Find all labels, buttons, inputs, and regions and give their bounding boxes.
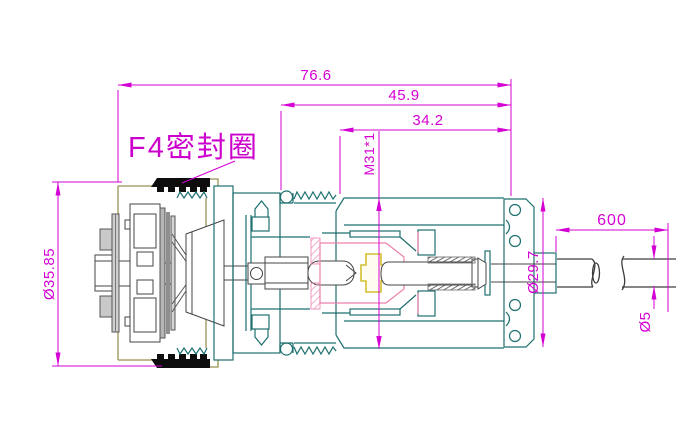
shell-threads-bottom [177,348,207,354]
dim-text-thread-spec: M31*1 [361,133,377,176]
insert-cell-bottom [134,298,156,332]
seat-block-top [418,230,435,255]
insert-cell-mid2 [137,280,153,294]
insert-cell-mid1 [137,252,153,266]
contact-tab-top [100,229,113,250]
knurl-dot-4 [510,331,521,342]
plate-1 [160,208,165,338]
retainer-block-bottom [252,315,269,329]
left-connector-assembly [95,179,248,367]
crimp-band-bottom [428,284,475,290]
dim-text-nut-od: Ø29.7 [525,250,542,293]
crimp-band-top [428,257,475,263]
cable [557,256,676,290]
o-ring-bottom [281,343,293,355]
connector-engineering-drawing: 76.6 45.9 34.2 M31*1 Ø35.85 Ø29.7 600 Ø5… [0,0,700,448]
thread-spec-arrow-down [376,336,381,349]
drawing-canvas: 76.6 45.9 34.2 M31*1 Ø35.85 Ø29.7 600 Ø5… [0,0,700,448]
pink-gasket-top [311,238,320,264]
retainer-block-top [252,217,269,231]
plate-3 [171,216,175,330]
dim-text-cable-od: Ø5 [637,311,654,332]
plate-2 [166,212,170,334]
center-pin [381,262,472,285]
f4-seal-top [151,178,210,192]
insert-cell-top [134,214,156,248]
dim-text-body-length: 45.9 [388,87,419,104]
retainer-wedge-bottom [255,329,268,345]
cable-segment-1 [557,259,593,287]
contact-tab-bottom [100,296,113,317]
pin-link-lines [224,266,248,280]
conductor-cone [478,258,486,289]
latch-bottom [125,317,130,326]
seal-ring-label: F4密封圈 [128,131,259,164]
socket-nose [308,261,354,285]
dim-text-cable-length: 600 [597,212,627,229]
retainer-wedge-top [255,201,268,217]
pink-gasket-bottom [311,283,320,309]
cable-break-curve-2 [622,256,625,290]
internal-contacts [248,238,556,309]
knurl-dot-2 [510,236,521,247]
cavity-arm-bottom [350,309,400,315]
dim-text-overall-length: 76.6 [300,67,331,84]
seat-block-bottom [418,291,435,316]
socket-body [265,257,308,289]
conductor-wires [491,264,556,282]
dim-text-thread-length: 34.2 [412,112,443,129]
thread-spec-arrow-up [376,198,381,211]
main-threads-top [294,192,336,203]
dim-text-flange-od: Ø35.85 [41,248,58,300]
knurl-dot-1 [510,205,521,216]
knurl-dot-3 [510,300,521,311]
o-ring-top [281,191,293,203]
cavity-arm-top [350,231,400,237]
shell-threads-top [177,192,207,198]
latch-top [125,220,130,229]
knurl-waves [506,220,510,326]
main-threads-bottom [294,343,336,354]
